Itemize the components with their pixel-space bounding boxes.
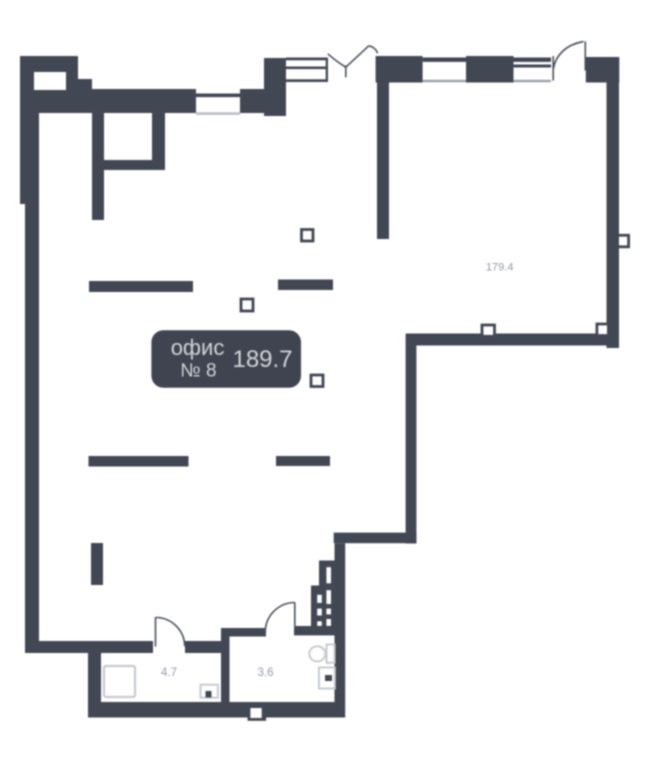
svg-text:офис: офис [171,335,225,360]
svg-text:№ 8: № 8 [180,361,216,382]
svg-text:179.4: 179.4 [486,262,514,274]
svg-text:4.7: 4.7 [161,667,177,679]
svg-text:3.6: 3.6 [258,667,274,679]
svg-text:189.7: 189.7 [232,346,292,373]
